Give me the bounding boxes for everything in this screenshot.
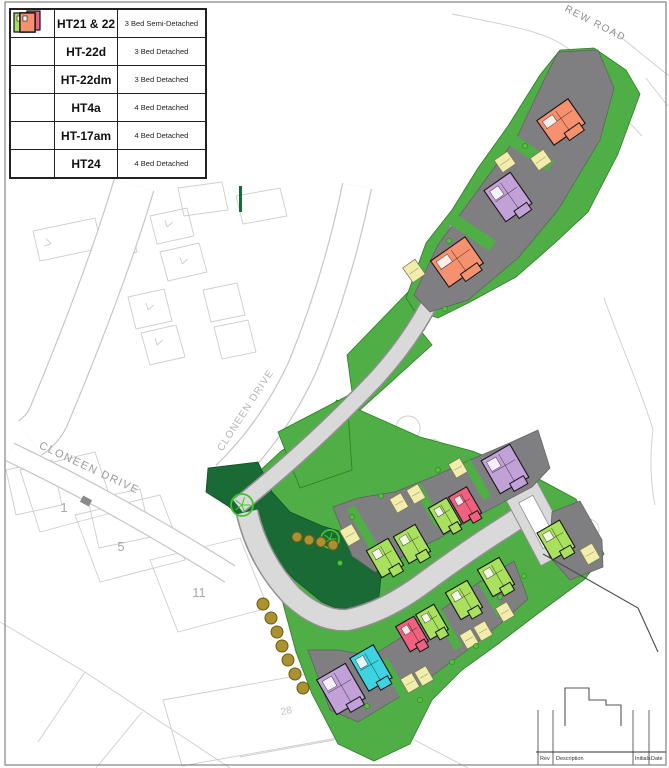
shrub-icon xyxy=(365,704,370,709)
site-plan-sheet: CLONEEN DRIVECLONEEN DRIVEREW ROAD151128… xyxy=(0,0,669,768)
existing-road xyxy=(30,185,134,438)
bush-icon xyxy=(271,626,283,638)
bush-icon xyxy=(257,598,269,610)
legend-house-desc: 4 Bed Detached xyxy=(117,94,205,122)
bush-icon xyxy=(292,532,302,542)
legend-house-desc: 4 Bed Detached xyxy=(117,122,205,150)
house-footprint-icon xyxy=(10,9,46,34)
legend-house-icon xyxy=(11,94,55,122)
legend-house-type: HT21 & 22 xyxy=(55,10,118,38)
existing-building-outline xyxy=(150,208,194,244)
existing-boundary-line xyxy=(96,712,142,768)
legend-house-desc: 3 Bed Semi-Detached xyxy=(117,10,205,38)
shrub-icon xyxy=(379,494,384,499)
shrub-icon xyxy=(338,561,343,566)
existing-building-outline xyxy=(160,243,207,281)
existing-building-outline xyxy=(141,325,185,365)
door-swing-mark xyxy=(163,220,172,228)
existing-building-outline xyxy=(128,289,172,329)
house-icon-room xyxy=(23,16,27,21)
existing-building-outline xyxy=(203,283,245,322)
door-swing-mark xyxy=(144,303,153,311)
legend-house-type: HT-22dm xyxy=(55,66,118,94)
existing-boundary-line xyxy=(646,78,668,106)
bush-icon xyxy=(289,668,301,680)
map-label: REW ROAD xyxy=(563,4,628,44)
existing-road xyxy=(10,452,230,574)
shrub-icon xyxy=(498,595,503,600)
legend-house-type: HT-22d xyxy=(55,38,118,66)
house-footprint-icon-part xyxy=(20,13,35,32)
hedge-sliver xyxy=(239,186,242,212)
legend-row: HT-22d3 Bed Detached xyxy=(11,38,206,66)
shrub-icon xyxy=(418,698,423,703)
shrub-icon xyxy=(523,144,528,149)
legend-house-type: HT4a xyxy=(55,94,118,122)
legend-row: HT4a4 Bed Detached xyxy=(11,94,206,122)
bush-icon xyxy=(276,640,288,652)
door-swing-mark xyxy=(178,257,187,265)
door-swing-mark xyxy=(153,338,162,346)
legend-row: HT-22dm3 Bed Detached xyxy=(11,66,206,94)
shrub-icon xyxy=(436,468,441,473)
bush-icon xyxy=(304,535,314,545)
revision-strip-label: Description xyxy=(556,756,584,762)
legend-house-desc: 3 Bed Detached xyxy=(117,66,205,94)
legend-house-type: HT24 xyxy=(55,150,118,178)
existing-building-outline xyxy=(178,182,228,216)
shrub-icon xyxy=(447,239,452,244)
legend-row: HT-17am4 Bed Detached xyxy=(11,122,206,150)
map-label: 5 xyxy=(117,539,124,554)
legend-house-icon xyxy=(11,150,55,178)
legend-table: HT21 & 223 Bed Semi-DetachedHT-22d3 Bed … xyxy=(10,9,206,178)
map-label: 28 xyxy=(280,705,294,718)
existing-boundary-line xyxy=(38,672,85,742)
existing-boundary-line xyxy=(604,298,653,430)
shrub-icon xyxy=(450,660,455,665)
existing-boundary-line xyxy=(0,622,230,768)
revision-strip-label: Date xyxy=(651,756,663,762)
existing-building-outline xyxy=(214,320,256,359)
legend-house-icon xyxy=(11,38,55,66)
revision-strip-label: Initials xyxy=(635,756,651,762)
door-swing-mark xyxy=(44,238,52,247)
bush-icon xyxy=(297,682,309,694)
map-label: 1 xyxy=(60,500,67,515)
legend-house-desc: 3 Bed Detached xyxy=(117,38,205,66)
bush-icon xyxy=(282,654,294,666)
existing-boundary-line xyxy=(240,740,334,757)
legend-row: HT244 Bed Detached xyxy=(11,150,206,178)
shrub-icon xyxy=(522,574,527,579)
revision-strip-label: Rev xyxy=(540,756,550,762)
site-boundary-line xyxy=(638,608,658,652)
existing-boundary-line xyxy=(651,430,655,505)
title-block-outline xyxy=(565,688,621,726)
bush-icon xyxy=(328,540,338,550)
existing-building-outline xyxy=(236,188,287,224)
bush-icon xyxy=(316,537,326,547)
house-type-legend: HT21 & 223 Bed Semi-DetachedHT-22d3 Bed … xyxy=(9,8,207,179)
shrub-icon xyxy=(474,644,479,649)
bush-icon xyxy=(265,612,277,624)
legend-house-type: HT-17am xyxy=(55,122,118,150)
shrub-icon xyxy=(443,307,448,312)
legend-house-desc: 4 Bed Detached xyxy=(117,150,205,178)
map-label: 11 xyxy=(192,585,206,600)
legend-house-icon xyxy=(11,66,55,94)
legend-house-icon xyxy=(11,122,55,150)
shrub-icon xyxy=(350,515,355,520)
